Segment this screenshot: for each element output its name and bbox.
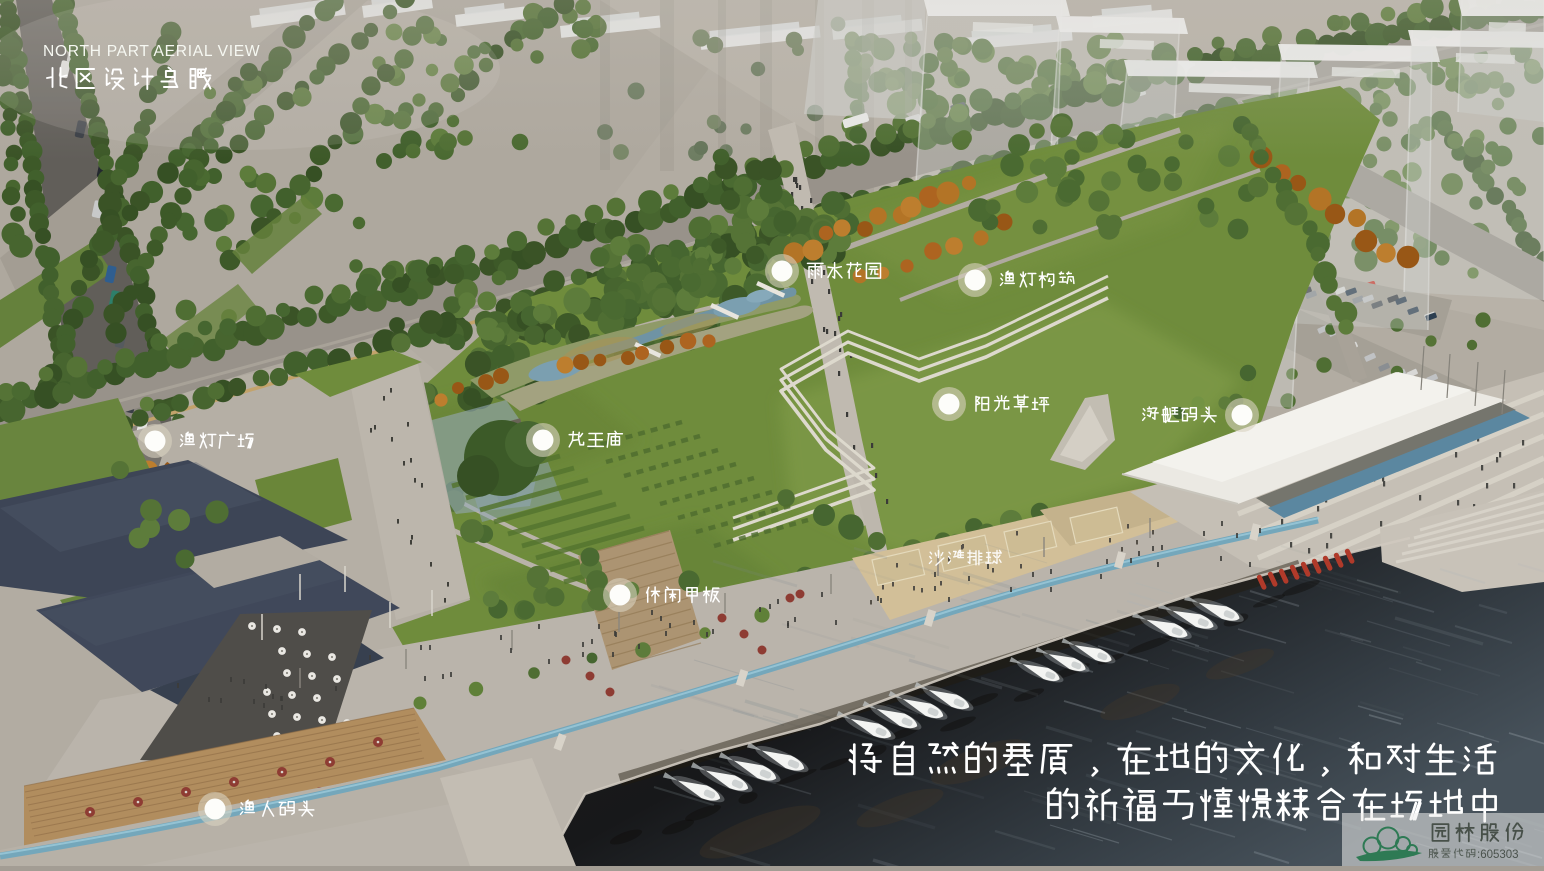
svg-text::605303: :605303 xyxy=(1477,849,1519,861)
svg-text:NORTH PART AERIAL VIEW: NORTH PART AERIAL VIEW xyxy=(43,43,260,60)
